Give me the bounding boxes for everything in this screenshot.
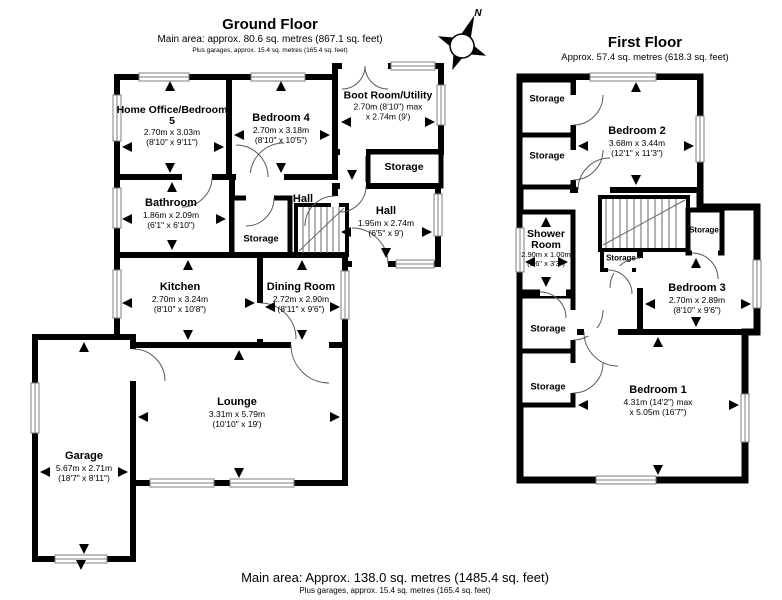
room-name: Lounge	[172, 397, 302, 409]
room-label-bedroom2: Bedroom 2 3.68m x 3.44m (12'1" x 11'3")	[582, 126, 692, 158]
room-name: Bedroom 2	[582, 126, 692, 138]
room-dims-metric: 2.72m x 2.90m	[266, 294, 336, 304]
footer-summary: Main area: Approx. 138.0 sq. metres (148…	[170, 570, 620, 597]
room-storage4	[520, 351, 573, 405]
room-name: Bedroom 3	[642, 283, 752, 295]
room-dims-metric: 2.70m x 3.03m	[116, 127, 228, 137]
room-dims-imperial: (8'10" x 9'11")	[116, 137, 228, 147]
first-floor-subtitle: Approx. 57.4 sq. metres (618.3 sq. feet)	[520, 52, 770, 64]
room-dims-imperial: x 5.05m (16'7")	[593, 407, 723, 417]
room-dims-metric: 2.70m x 2.89m	[642, 295, 752, 305]
room-dims-imperial: (8'10" x 9'6")	[642, 305, 752, 315]
room-label-bedroom4: Bedroom 4 2.70m x 3.18m (8'10" x 10'5")	[229, 113, 333, 145]
room-label-storage-under: Storage	[601, 255, 641, 264]
room-dims-imperial: (8'10" x 10'8")	[120, 304, 240, 314]
room-dims-metric: 2.70m (8'10") max	[340, 101, 436, 111]
room-name: Boot Room/Utility	[340, 90, 436, 101]
room-dims-imperial: (10'10" x 19')	[172, 419, 302, 429]
first-floor-title: First Floor	[520, 34, 770, 52]
first-floor-title-block: First Floor Approx. 57.4 sq. metres (618…	[520, 34, 770, 64]
room-name: Bedroom 4	[229, 113, 333, 125]
room-dims-metric: 1.95m x 2.74m	[338, 218, 434, 228]
room-name: Bathroom	[113, 198, 229, 210]
ground-floor-note: Plus garages, approx. 15.4 sq. metres (1…	[120, 47, 420, 55]
room-dims-metric: 4.31m (14'2") max	[593, 397, 723, 407]
room-label-home-office: Home Office/Bedroom 5 2.70m x 3.03m (8'1…	[116, 105, 228, 147]
room-name: Garage	[39, 451, 129, 463]
ground-floor-title: Ground Floor	[120, 16, 420, 34]
room-label-kitchen: Kitchen 2.70m x 3.24m (8'10" x 10'8")	[120, 282, 240, 314]
room-label-storage-boot: Storage	[369, 162, 439, 174]
room-label-storage1: Storage	[517, 95, 577, 106]
footer-note: Plus garages, approx. 15.4 sq. metres (1…	[170, 586, 620, 596]
room-dims-imperial: (8'10" x 10'5")	[229, 135, 333, 145]
room-dims-imperial: (18'7" x 8'11")	[39, 473, 129, 483]
room-storage1	[520, 80, 573, 135]
room-label-shower: Shower Room 2.90m x 1.00m (9'6" x 3'3")	[517, 229, 575, 269]
room-label-hall-left: Hall	[283, 194, 323, 206]
room-name: Hall	[338, 206, 434, 218]
room-label-garage: Garage 5.67m x 2.71m (18'7" x 8'11")	[39, 451, 129, 483]
room-name: Shower Room	[517, 229, 575, 251]
room-dims-imperial: (6'5" x 9')	[338, 228, 434, 238]
room-dims-metric: 2.70m x 3.24m	[120, 294, 240, 304]
room-dims-metric: 5.67m x 2.71m	[39, 463, 129, 473]
room-label-storage2: Storage	[517, 152, 577, 163]
room-dims-metric: 2.70m x 3.18m	[229, 125, 333, 135]
room-dims-imperial: (8'11" x 9'6")	[266, 304, 336, 314]
floor-plan-page: N Ground Floor Main area: approx. 80.6 s…	[0, 0, 782, 600]
room-name: Dining Room	[266, 282, 336, 294]
room-name: Bedroom 1	[593, 385, 723, 397]
room-dims-imperial: (12'1" x 11'3")	[582, 148, 692, 158]
room-label-bedroom1: Bedroom 1 4.31m (14'2") max x 5.05m (16'…	[593, 385, 723, 417]
room-label-hall: Hall 1.95m x 2.74m (6'5" x 9')	[338, 206, 434, 238]
room-dims-metric: 3.68m x 3.44m	[582, 138, 692, 148]
room-dims-imperial: x 2.74m (9')	[340, 112, 436, 122]
footer-main-area: Main area: Approx. 138.0 sq. metres (148…	[170, 570, 620, 586]
compass-north-label: N	[474, 8, 481, 19]
room-dims-metric: 3.31m x 5.79m	[172, 409, 302, 419]
room-label-boot-room: Boot Room/Utility 2.70m (8'10") max x 2.…	[340, 90, 436, 121]
ground-floor-subtitle: Main area: approx. 80.6 sq. metres (867.…	[120, 34, 420, 47]
room-label-bedroom3: Bedroom 3 2.70m x 2.89m (8'10" x 9'6")	[642, 283, 752, 315]
room-label-storage4: Storage	[518, 383, 578, 394]
room-label-dining: Dining Room 2.72m x 2.90m (8'11" x 9'6")	[266, 282, 336, 314]
room-dims-imperial: (6'1" x 6'10")	[113, 220, 229, 230]
ground-floor-title-block: Ground Floor Main area: approx. 80.6 sq.…	[120, 16, 420, 55]
room-label-bathroom: Bathroom 1.86m x 2.09m (6'1" x 6'10")	[113, 198, 229, 230]
room-name: Home Office/Bedroom 5	[116, 105, 228, 127]
room-name: Kitchen	[120, 282, 240, 294]
room-label-storage3: Storage	[518, 325, 578, 336]
room-label-storage-stairs: Storage	[684, 227, 724, 236]
room-storage-hall	[232, 198, 290, 255]
room-dims-metric: 1.86m x 2.09m	[113, 210, 229, 220]
room-garage	[35, 337, 133, 559]
room-label-lounge: Lounge 3.31m x 5.79m (10'10" x 19')	[172, 397, 302, 429]
room-label-storage-hall: Storage	[231, 235, 291, 246]
room-dims-imperial: (9'6" x 3'3")	[517, 260, 575, 269]
